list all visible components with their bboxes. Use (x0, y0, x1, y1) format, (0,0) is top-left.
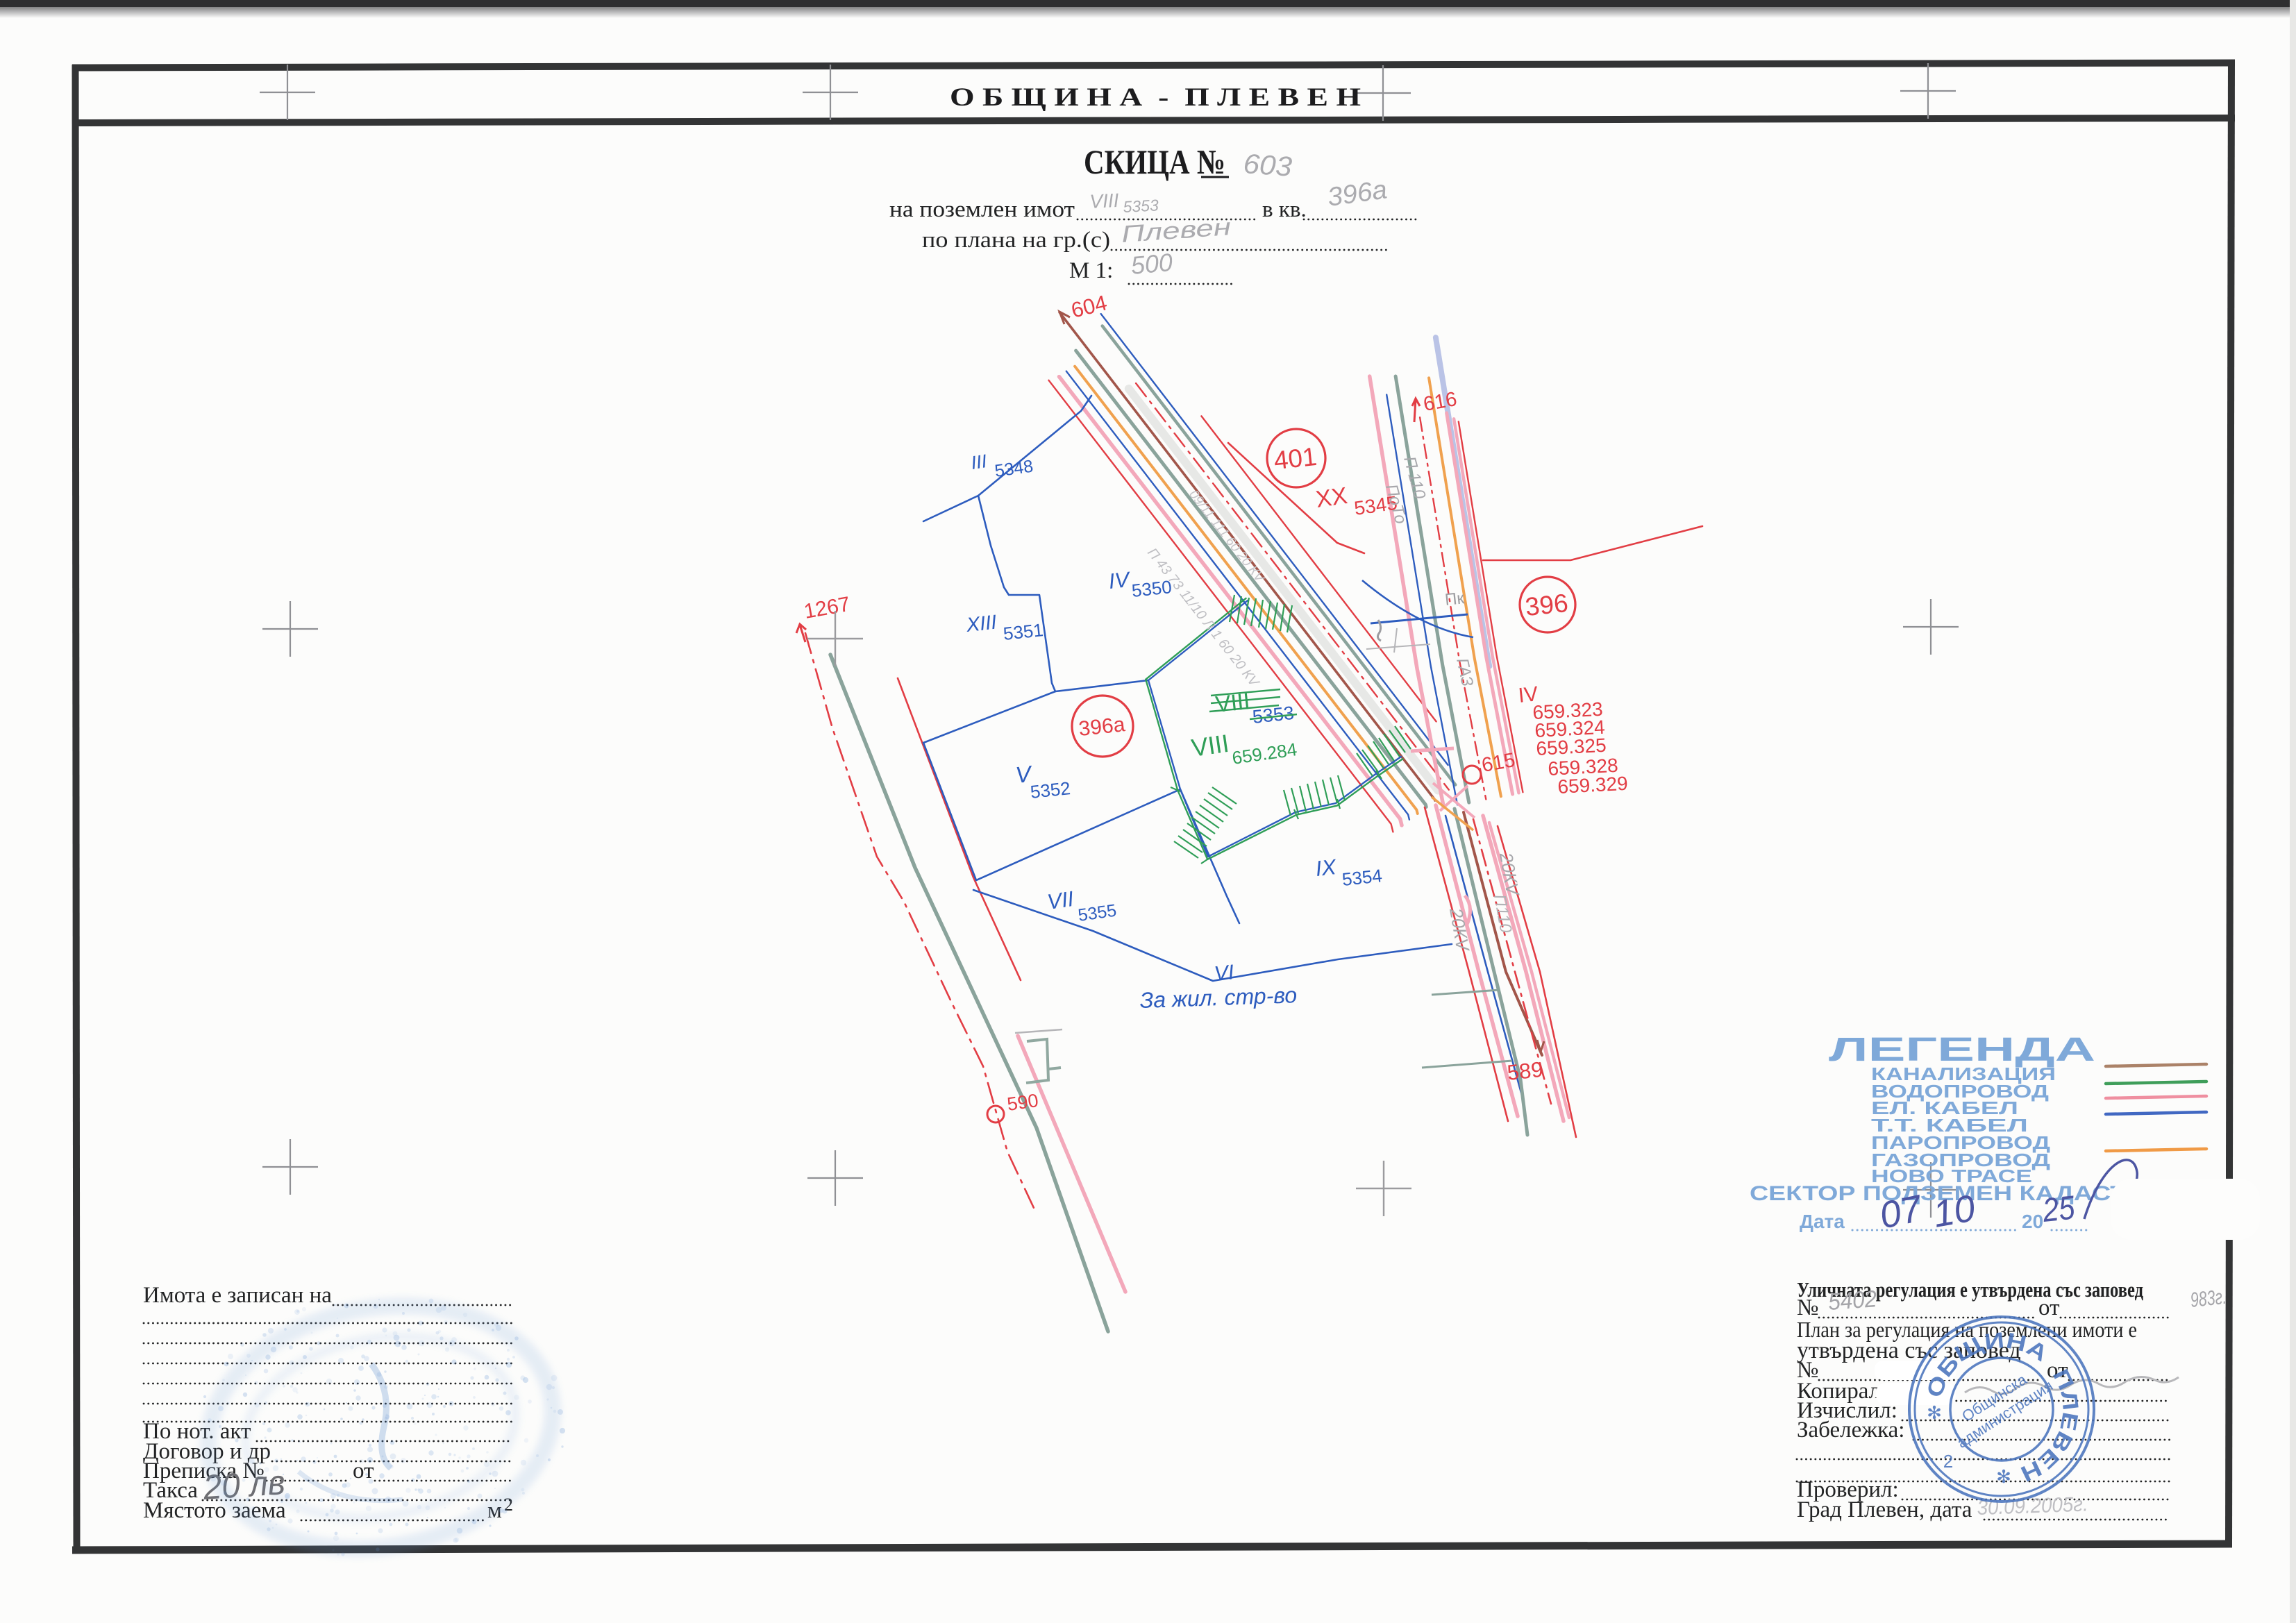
svg-text:Пк: Пк (1444, 589, 1466, 609)
svg-text:III: III (970, 451, 989, 473)
svg-text:603: 603 (1242, 149, 1293, 183)
svg-text:СКИЦА №: СКИЦА № (1084, 142, 1225, 181)
svg-text:VI: VI (1213, 961, 1235, 986)
svg-text:XX: XX (1314, 482, 1349, 513)
svg-text:XIII: XIII (964, 612, 998, 637)
svg-text:401: 401 (1273, 442, 1318, 475)
svg-text:2: 2 (1943, 1451, 1953, 1472)
svg-text:10: 10 (1930, 1187, 1979, 1236)
svg-text:5353: 5353 (1123, 196, 1159, 216)
svg-text:IX: IX (1314, 855, 1338, 881)
svg-text:Забележка:: Забележка: (1797, 1418, 1904, 1443)
svg-text:Имота е записан на: Имота е записан на (143, 1283, 332, 1308)
svg-text:500: 500 (1130, 248, 1173, 280)
svg-text:✻: ✻ (1996, 1466, 2011, 1487)
svg-text:на поземлен имот: на поземлен имот (889, 197, 1075, 222)
svg-text:20: 20 (2022, 1211, 2043, 1232)
svg-text:✻: ✻ (1927, 1402, 1942, 1423)
svg-text:590: 590 (1006, 1090, 1040, 1115)
svg-text:5351: 5351 (1002, 619, 1044, 644)
svg-text:О Б Щ И Н А - П Л Е В Е Н: О Б Щ И Н А - П Л Е В Е Н (950, 83, 1361, 112)
svg-text:М 1:: М 1: (1069, 258, 1113, 283)
svg-text:659.329: 659.329 (1557, 773, 1629, 798)
svg-text:VIII: VIII (1189, 729, 1230, 762)
svg-text:983г.: 983г. (2189, 1286, 2227, 1312)
svg-text:396а: 396а (1078, 713, 1126, 741)
svg-text:5402: 5402 (1827, 1286, 1878, 1315)
svg-text:VIII: VIII (1089, 190, 1120, 212)
svg-text:по плана на гр.(с): по плана на гр.(с) (922, 228, 1110, 253)
svg-text:5354: 5354 (1341, 865, 1383, 890)
svg-text:396: 396 (1524, 589, 1570, 621)
svg-text:Дата: Дата (1800, 1211, 1845, 1232)
svg-text:25: 25 (2041, 1189, 2077, 1229)
svg-text:5352: 5352 (1029, 777, 1071, 802)
svg-text:Град Плевен, дата: Град Плевен, дата (1797, 1497, 1972, 1522)
svg-text:VII: VII (1046, 886, 1075, 914)
svg-text:в кв.: в кв. (1262, 197, 1307, 222)
